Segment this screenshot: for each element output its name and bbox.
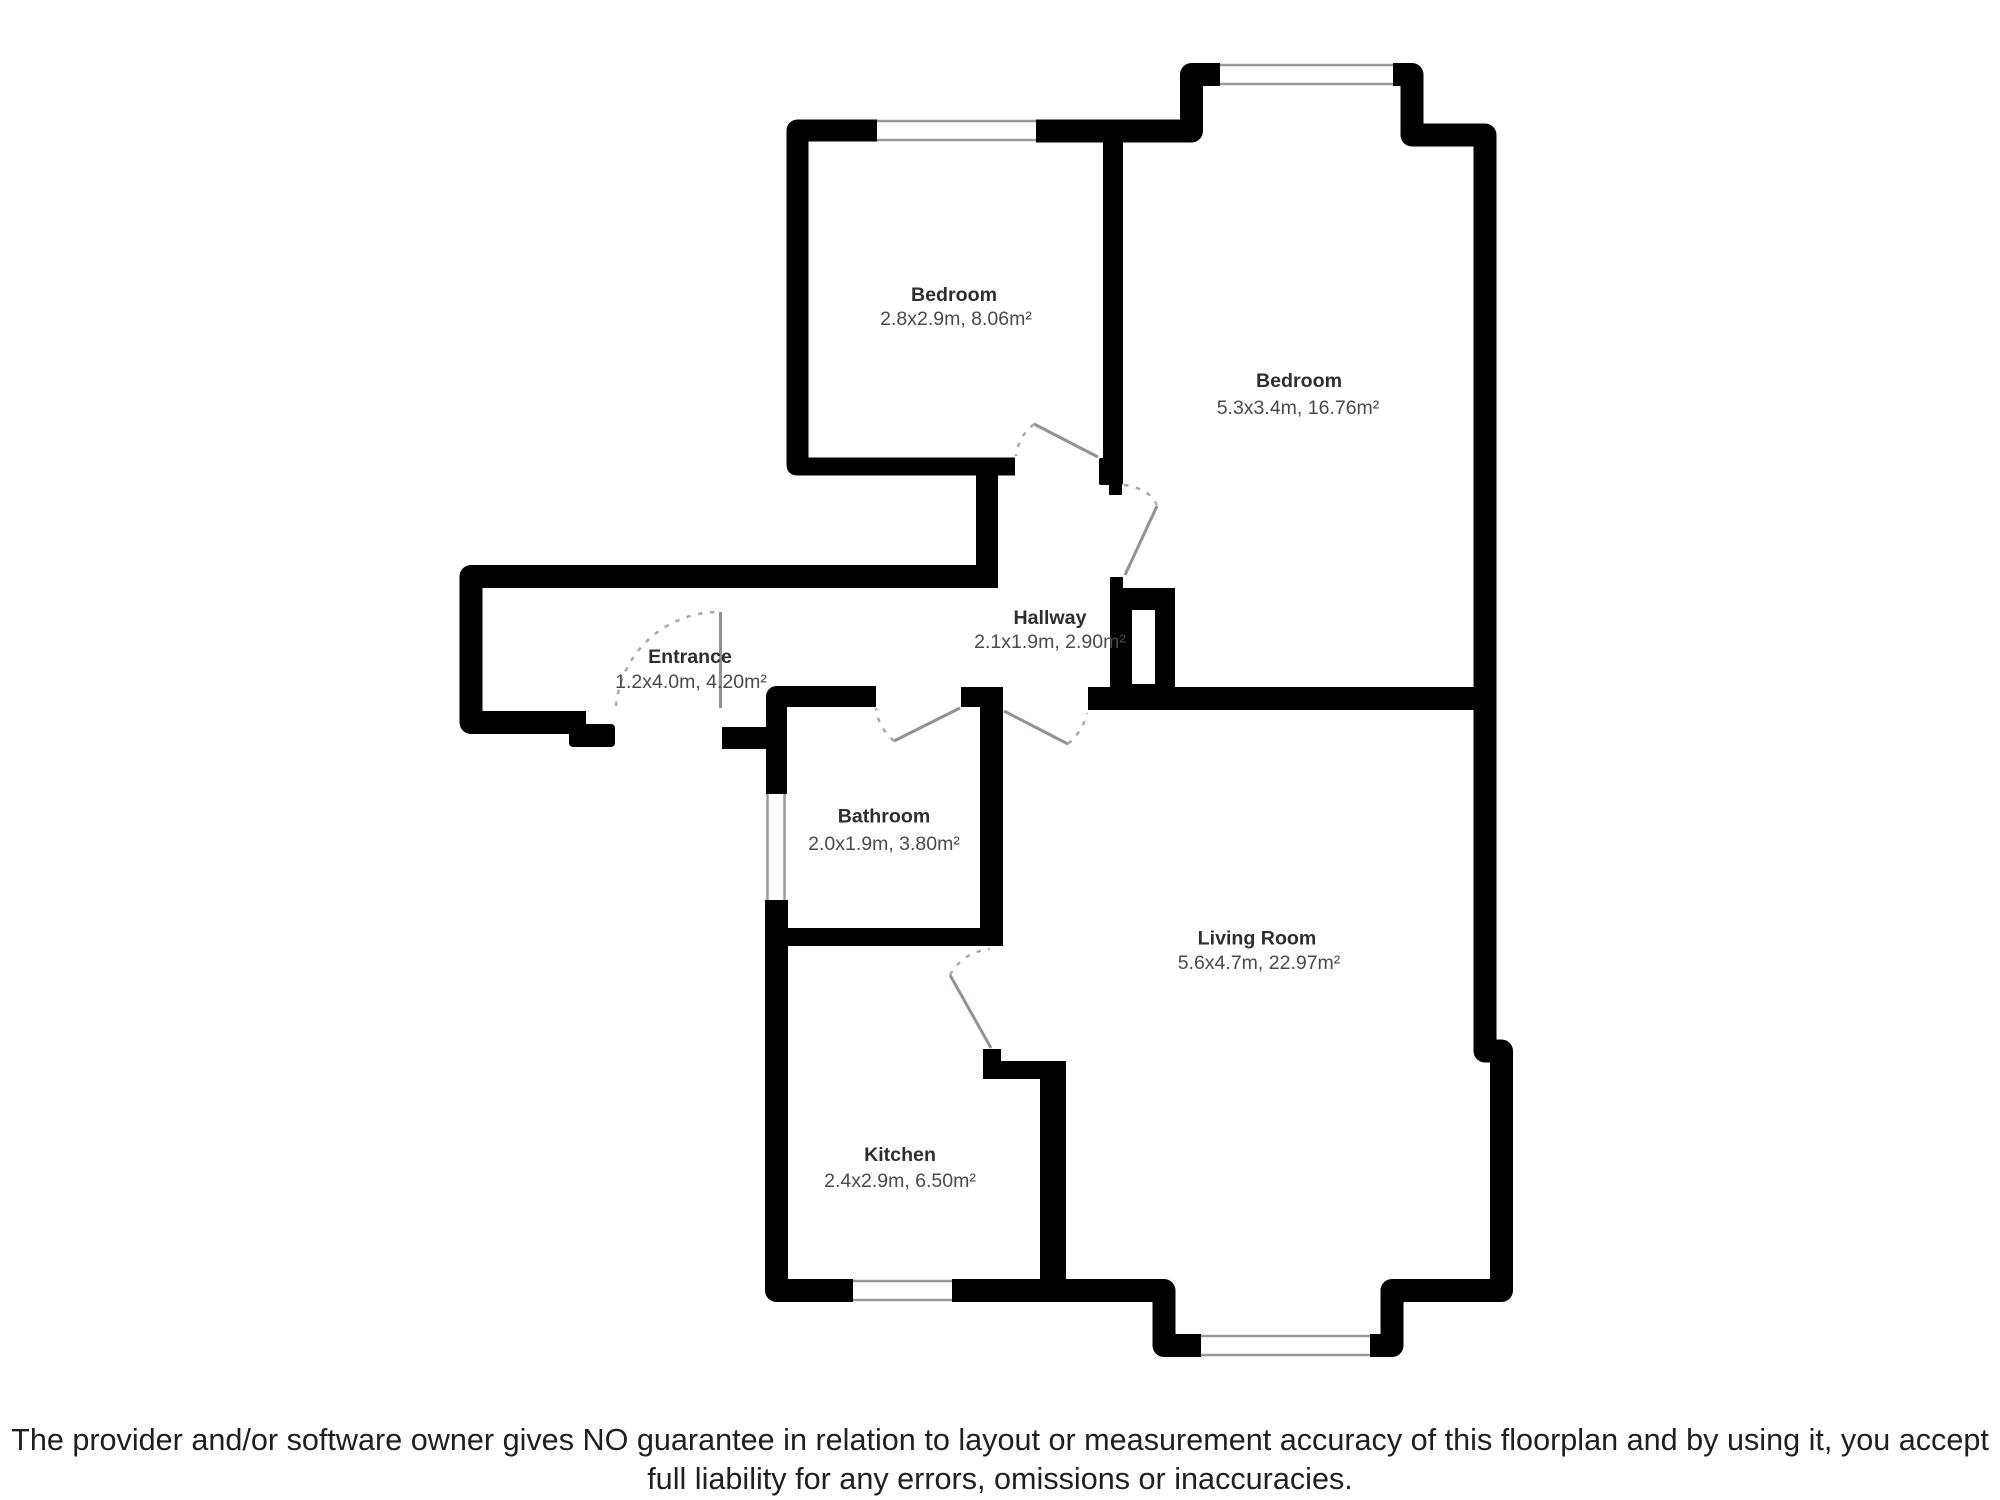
svg-text:2.1x1.9m, 2.90m²: 2.1x1.9m, 2.90m² — [974, 631, 1126, 653]
svg-text:Hallway: Hallway — [1014, 607, 1087, 629]
svg-text:Living Room: Living Room — [1198, 928, 1317, 950]
svg-text:Entrance: Entrance — [648, 646, 732, 668]
svg-text:1.2x4.0m, 4.20m²: 1.2x4.0m, 4.20m² — [615, 671, 767, 693]
svg-text:5.3x3.4m, 16.76m²: 5.3x3.4m, 16.76m² — [1217, 397, 1380, 419]
svg-text:Bathroom: Bathroom — [838, 806, 931, 828]
svg-text:The provider and/or software o: The provider and/or software owner gives… — [11, 1423, 1989, 1457]
svg-text:2.8x2.9m, 8.06m²: 2.8x2.9m, 8.06m² — [880, 308, 1032, 330]
svg-text:2.4x2.9m, 6.50m²: 2.4x2.9m, 6.50m² — [824, 1170, 976, 1192]
svg-text:2.0x1.9m, 3.80m²: 2.0x1.9m, 3.80m² — [808, 833, 960, 855]
svg-text:full liability for any errors,: full liability for any errors, omissions… — [647, 1462, 1353, 1496]
svg-text:Kitchen: Kitchen — [864, 1144, 936, 1166]
svg-text:Bedroom: Bedroom — [911, 284, 997, 306]
svg-text:Bedroom: Bedroom — [1256, 370, 1342, 392]
svg-text:5.6x4.7m, 22.97m²: 5.6x4.7m, 22.97m² — [1178, 952, 1341, 974]
